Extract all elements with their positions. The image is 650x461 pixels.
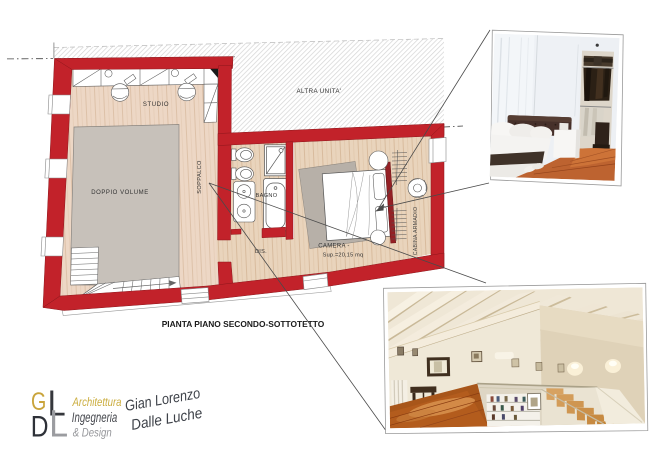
svg-text:Sup.=20,15 mq: Sup.=20,15 mq xyxy=(323,253,364,259)
svg-text:Ingegneria: Ingegneria xyxy=(72,410,118,425)
svg-text:BAGNO: BAGNO xyxy=(256,193,278,199)
svg-text:DOPPIO VOLUME: DOPPIO VOLUME xyxy=(91,190,149,196)
svg-text:CAMERA -: CAMERA - xyxy=(318,244,349,250)
svg-text:& Design: & Design xyxy=(73,428,112,440)
svg-text:Architettura: Architettura xyxy=(72,395,122,409)
svg-text:SOPPALCO: SOPPALCO xyxy=(197,160,203,194)
svg-text:L: L xyxy=(49,402,68,445)
svg-text:CABINA ARMADIO: CABINA ARMADIO xyxy=(413,207,419,256)
svg-text:D: D xyxy=(31,409,49,443)
svg-text:ALTRA UNITA': ALTRA UNITA' xyxy=(297,88,342,95)
svg-text:STUDIO: STUDIO xyxy=(143,102,169,108)
svg-text:PIANTA PIANO SECONDO-SOTTOTETT: PIANTA PIANO SECONDO-SOTTOTETTO xyxy=(162,319,325,329)
